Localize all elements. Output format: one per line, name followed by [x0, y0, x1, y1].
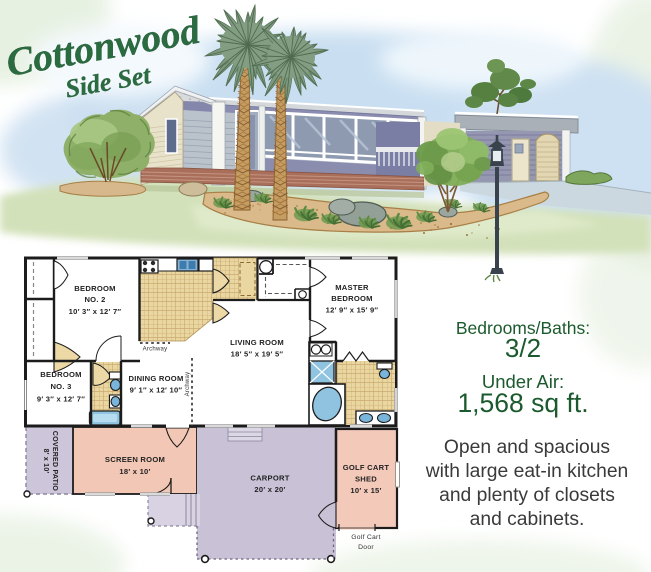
svg-text:Archway: Archway: [185, 372, 191, 397]
svg-text:BEDROOM: BEDROOM: [331, 294, 372, 303]
svg-text:18′ x 10′: 18′ x 10′: [119, 467, 150, 476]
svg-text:NO. 2: NO. 2: [84, 295, 105, 304]
svg-text:DINING ROOM: DINING ROOM: [128, 374, 183, 383]
svg-text:and plenty of closets: and plenty of closets: [439, 485, 615, 506]
svg-text:9′ 1″ x 12′ 10″: 9′ 1″ x 12′ 10″: [130, 386, 183, 395]
svg-text:Archway: Archway: [143, 347, 168, 353]
svg-text:COVERED PATIO: COVERED PATIO: [51, 431, 58, 491]
svg-text:1,568 sq ft.: 1,568 sq ft.: [457, 388, 588, 418]
svg-text:CARPORT: CARPORT: [250, 474, 289, 483]
svg-text:10′ x 15′: 10′ x 15′: [350, 486, 381, 495]
svg-text:GOLF CART: GOLF CART: [343, 463, 390, 472]
svg-text:SCREEN ROOM: SCREEN ROOM: [105, 455, 165, 464]
svg-text:Golf Cart: Golf Cart: [351, 534, 380, 541]
svg-text:8′ x 10′: 8′ x 10′: [42, 449, 49, 474]
svg-text:BEDROOM: BEDROOM: [74, 284, 115, 293]
svg-text:Open and spacious: Open and spacious: [444, 437, 610, 458]
svg-text:SHED: SHED: [355, 475, 377, 484]
svg-text:LIVING ROOM: LIVING ROOM: [230, 338, 284, 347]
svg-text:MASTER: MASTER: [335, 283, 369, 292]
svg-text:9′ 3″ x 12′ 7″: 9′ 3″ x 12′ 7″: [37, 395, 85, 404]
svg-text:18′ 5″ x 19′ 5″: 18′ 5″ x 19′ 5″: [231, 350, 284, 359]
svg-text:NO. 3: NO. 3: [50, 382, 71, 391]
svg-text:12′ 9″ x 15′ 9″: 12′ 9″ x 15′ 9″: [326, 306, 379, 315]
svg-text:and cabinets.: and cabinets.: [470, 509, 585, 530]
svg-text:10′ 3″ x 12′ 7″: 10′ 3″ x 12′ 7″: [69, 307, 122, 316]
svg-text:3/2: 3/2: [505, 333, 541, 363]
svg-text:with large eat-in kitchen: with large eat-in kitchen: [425, 461, 629, 482]
svg-text:Door: Door: [358, 544, 374, 551]
svg-text:20′ x 20′: 20′ x 20′: [254, 485, 285, 494]
svg-text:BEDROOM: BEDROOM: [40, 370, 81, 379]
